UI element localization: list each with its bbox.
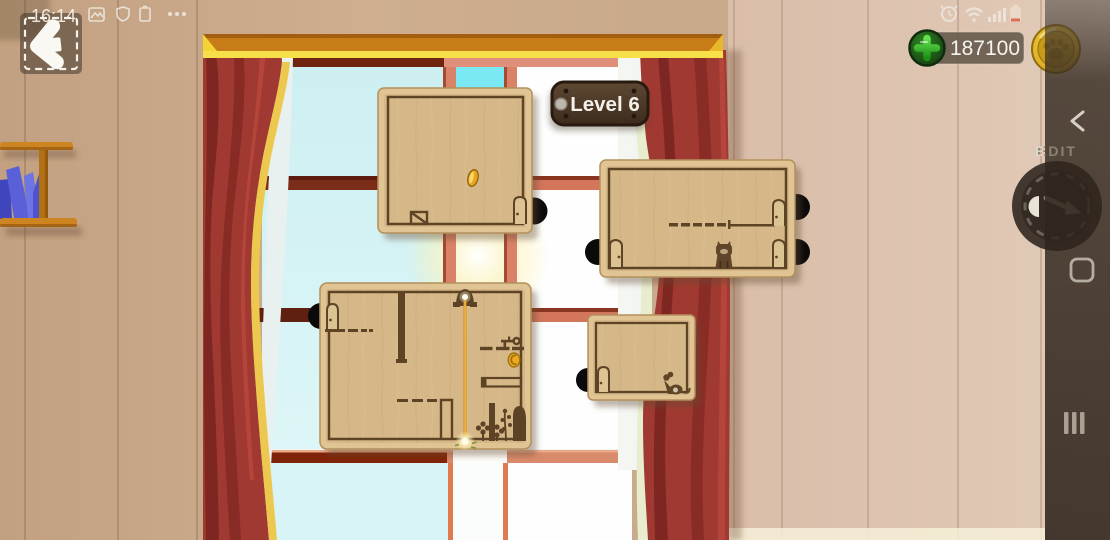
svg-text:16:14: 16:14 [31, 6, 76, 26]
svg-text:187100: 187100 [950, 37, 1020, 60]
svg-text:E: E [1035, 143, 1044, 159]
svg-text:Level 6: Level 6 [570, 93, 640, 116]
